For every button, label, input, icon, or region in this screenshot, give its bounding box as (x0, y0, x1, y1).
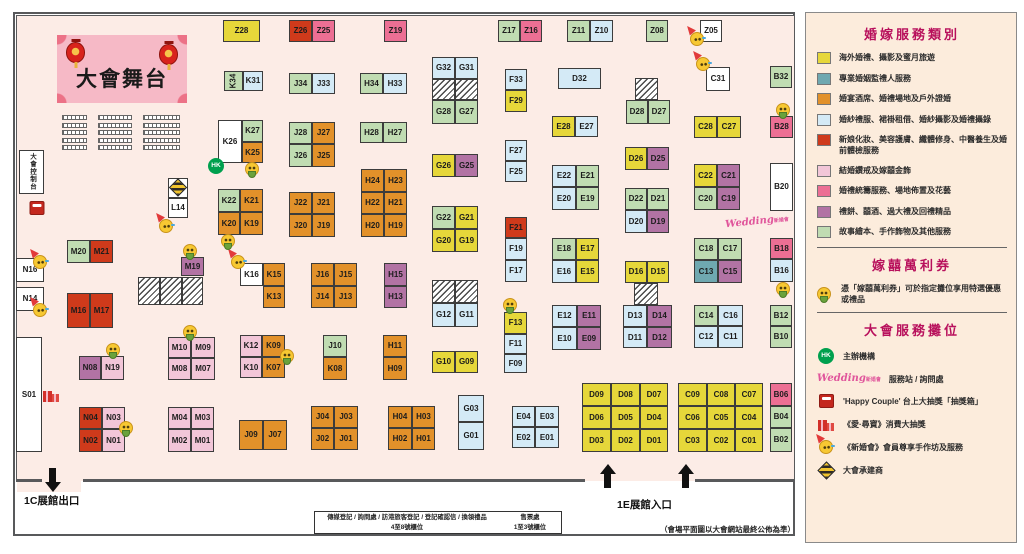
party-icon (819, 440, 833, 454)
booth-G03: G03 (458, 395, 484, 422)
booth-J01: J01 (334, 428, 358, 450)
registration-counter: 傳媒登記 / 詢問處 / 訪港旅客登記 / 登記確認信 / 換領禮品 4至8號櫃… (314, 511, 562, 534)
booth-C28: C28 (694, 116, 717, 138)
booth-E11: E11 (577, 305, 601, 327)
booth-J34: J34 (289, 73, 312, 94)
hatched-area (634, 283, 658, 305)
booth-B32: B32 (770, 66, 792, 88)
booth-M20: M20 (67, 240, 90, 263)
booth-C13: C13 (694, 260, 718, 283)
booth-H20: H20 (361, 214, 384, 237)
booth-Z11: Z11 (567, 20, 590, 42)
category-swatch (817, 165, 831, 177)
lantern-icon (66, 42, 85, 63)
booth-D13: D13 (623, 305, 647, 327)
redbox-icon (30, 199, 45, 217)
booth-C22: C22 (694, 164, 717, 187)
booth-E28: E28 (552, 116, 575, 137)
booth-B16: B16 (770, 259, 793, 282)
booth-M04: M04 (168, 407, 191, 429)
booth-G32: G32 (432, 57, 455, 79)
booth-N08: N08 (79, 356, 101, 380)
booth-E19: E19 (576, 187, 599, 210)
booth-D21: D21 (647, 188, 669, 210)
category-item: 新娘化妝、美容護膚、纖體修身、中醫養生及婚前體檢服務 (817, 134, 1007, 156)
booth-E12: E12 (552, 305, 577, 327)
booth-D27: D27 (648, 100, 670, 124)
booth-D11: D11 (623, 327, 647, 348)
hk-icon: HK (208, 157, 224, 175)
booth-F21: F21 (505, 217, 527, 238)
booth-G12: G12 (432, 303, 455, 327)
booth-E21: E21 (576, 165, 599, 187)
booth-E09: E09 (577, 327, 601, 350)
main-stage: 大會舞台 (57, 35, 187, 103)
booth-C08: C08 (707, 383, 735, 406)
hk-icon: HK (818, 348, 834, 364)
wedding-icon: Wedding新婚會 (817, 374, 881, 384)
party-icon (231, 253, 245, 271)
category-swatch (817, 185, 831, 197)
bottom-wall-segment (695, 479, 795, 482)
booth-Z10: Z10 (590, 20, 613, 42)
booth-D06: D06 (582, 406, 611, 429)
booth-H33: H33 (383, 73, 407, 94)
booth-M01: M01 (191, 429, 214, 452)
booth-F27: F27 (505, 140, 527, 161)
hatched-area (635, 78, 658, 100)
booth-M17: M17 (90, 293, 113, 328)
diamond-icon (169, 179, 187, 197)
service-icon-holder (817, 464, 835, 477)
booth-C21: C21 (717, 164, 740, 187)
seat-row (98, 130, 132, 135)
redbox-icon (819, 394, 834, 408)
floorplan-canvas: 大會舞台 大會控制台 Z28Z26Z25Z19Z17Z16Z11Z10Z08Z0… (0, 0, 1024, 554)
smiley-icon (503, 298, 517, 312)
booth-H03: H03 (412, 406, 435, 428)
booth-D08: D08 (611, 383, 640, 406)
booth-M21: M21 (90, 240, 113, 263)
category-item: 禮餅、囍酒、過大禮及回禮精品 (817, 206, 1007, 218)
booth-D09: D09 (582, 383, 611, 406)
booth-C11: C11 (718, 326, 743, 348)
category-swatch (817, 114, 831, 126)
booth-K13: K13 (263, 286, 285, 308)
booth-E10: E10 (552, 327, 577, 350)
booth-H04: H04 (388, 406, 412, 428)
booth-J22: J22 (289, 192, 312, 214)
service-label: 'Happy Couple' 台上大抽獎「抽獎箱」 (843, 396, 983, 407)
seat-row (62, 138, 87, 143)
smiley-icon (119, 419, 133, 437)
voucher-text: 憑「嫁囍萬利券」可於指定攤位享用特選優惠或禮品 (841, 283, 1007, 305)
booth-H23: H23 (384, 169, 407, 192)
party-icon (696, 57, 710, 71)
booth-F19: F19 (505, 238, 527, 260)
smiley-icon (183, 244, 197, 258)
seat-row (62, 123, 87, 128)
booth-G25: G25 (455, 154, 478, 177)
booth-K15: K15 (263, 263, 285, 286)
seat-row (98, 115, 132, 120)
booth-J14: J14 (311, 286, 334, 308)
hatched-area (160, 277, 182, 305)
booth-D07: D07 (640, 383, 668, 406)
booth-D15: D15 (647, 261, 669, 283)
smiley-icon (503, 296, 517, 314)
booth-C16: C16 (718, 305, 743, 326)
booth-B18: B18 (770, 238, 793, 259)
booth-F33: F33 (505, 69, 527, 90)
booth-J26: J26 (289, 144, 312, 167)
booth-J07: J07 (263, 420, 287, 450)
seat-row (62, 115, 87, 120)
booth-C14: C14 (694, 305, 718, 326)
booth-J10: J10 (323, 335, 347, 357)
lantern-icon (159, 44, 178, 65)
divider (817, 247, 1007, 248)
booth-J16: J16 (311, 263, 334, 286)
booth-E02: E02 (512, 427, 535, 448)
exit-arrow (44, 468, 61, 492)
booth-G11: G11 (455, 303, 478, 327)
booth-E17: E17 (576, 238, 599, 260)
seat-row (98, 123, 132, 128)
booth-D03: D03 (582, 429, 611, 452)
legend-title-services: 大會服務攤位 (817, 320, 1007, 339)
booth-Z16: Z16 (520, 20, 542, 42)
booth-B20: B20 (770, 163, 793, 211)
category-label: 婚禮統籌服務、場地佈置及花藝 (839, 185, 951, 196)
booth-J20: J20 (289, 214, 312, 237)
booth-C18: C18 (694, 238, 718, 260)
booth-C17: C17 (718, 238, 742, 260)
booth-N04: N04 (79, 407, 102, 429)
booth-H28: H28 (360, 122, 383, 143)
disclaimer-note: （會場平面圖以大會網站最終公佈為準） (555, 524, 795, 535)
smiley-icon (106, 343, 120, 357)
booth-E18: E18 (552, 238, 576, 260)
booth-M08: M08 (168, 358, 191, 380)
party-icon (33, 301, 47, 319)
booth-H24: H24 (361, 169, 384, 192)
party-icon (696, 55, 710, 73)
ticket-counter-text: 售票處 1至3號櫃位 (499, 512, 561, 533)
gifts-icon (43, 389, 59, 402)
hatched-area (138, 277, 160, 305)
booth-H21: H21 (384, 192, 407, 214)
booth-Z19: Z19 (384, 20, 407, 42)
booth-D04: D04 (640, 406, 668, 429)
party-icon (159, 219, 173, 233)
booth-C12: C12 (694, 326, 718, 348)
booth-J03: J03 (334, 406, 358, 428)
booth-K08: K08 (323, 357, 347, 380)
booth-F25: F25 (505, 161, 527, 182)
booth-H11: H11 (383, 335, 407, 357)
booth-M02: M02 (168, 429, 191, 452)
hatched-area (455, 280, 478, 303)
booth-C20: C20 (694, 187, 717, 210)
booth-Z17: Z17 (498, 20, 520, 42)
booth-H09: H09 (383, 357, 407, 380)
booth-G22: G22 (432, 206, 455, 229)
service-item: 'Happy Couple' 台上大抽獎「抽獎箱」 (817, 394, 1007, 408)
exit-label: 1C展館出口 (24, 493, 79, 508)
category-swatch (817, 206, 831, 218)
booth-G10: G10 (432, 351, 455, 373)
smiley-icon (221, 234, 235, 248)
booth-D32: D32 (558, 68, 601, 89)
booth-B10: B10 (770, 326, 792, 348)
smiley-icon (245, 162, 259, 176)
redbox-icon (30, 201, 45, 215)
smiley-icon (280, 349, 294, 363)
booth-F09: F09 (504, 354, 527, 373)
booth-G20: G20 (432, 229, 455, 252)
service-label: 《愛·尋寶》消費大抽獎 (843, 419, 926, 430)
booth-K27: K27 (242, 120, 263, 142)
entrance-arrow (599, 464, 616, 488)
smiley-icon (776, 282, 790, 296)
gifts-icon (818, 418, 834, 431)
booth-C09: C09 (678, 383, 707, 406)
booth-E27: E27 (575, 116, 598, 137)
category-swatch (817, 52, 831, 64)
category-label: 禮餅、囍酒、過大禮及回禮精品 (839, 206, 951, 217)
booth-S01: S01 (16, 337, 42, 452)
control-console-label: 大會控制台 (27, 153, 37, 191)
smiley-icon (280, 347, 294, 365)
booth-K10: K10 (240, 357, 262, 378)
category-item: 海外婚禮、攝影及蜜月旅遊 (817, 52, 1007, 64)
booth-J33: J33 (312, 73, 335, 94)
booth-J25: J25 (312, 144, 335, 167)
party-icon (690, 30, 704, 48)
control-console: 大會控制台 (19, 150, 44, 194)
booth-J02: J02 (311, 428, 334, 450)
money-smiley-icon (817, 283, 833, 303)
booth-H02: H02 (388, 428, 412, 450)
legend-title-categories: 婚嫁服務類別 (817, 24, 1007, 43)
seat-row (143, 138, 180, 143)
booth-G21: G21 (455, 206, 478, 229)
booth-D05: D05 (611, 406, 640, 429)
booth-K31: K31 (243, 71, 263, 91)
wedding-icon: Wedding新婚會 (725, 217, 789, 227)
booth-K34: K34 (224, 71, 243, 91)
booth-F11: F11 (504, 334, 527, 354)
seat-row (62, 130, 87, 135)
voucher-row: 憑「嫁囍萬利券」可於指定攤位享用特選優惠或禮品 (817, 283, 1007, 305)
booth-D19: D19 (647, 210, 669, 233)
seat-row (98, 145, 132, 150)
booth-G19: G19 (455, 229, 478, 252)
booth-M16: M16 (67, 293, 90, 328)
gifts-icon (43, 387, 59, 405)
smiley-icon (776, 103, 790, 117)
booth-G28: G28 (432, 100, 455, 124)
category-item: 婚紗禮服、裙褂租借、婚紗攝影及婚禮攝錄 (817, 114, 1007, 126)
category-swatch (817, 226, 831, 238)
booth-E15: E15 (576, 260, 599, 283)
booth-D28: D28 (626, 100, 648, 124)
seat-row (143, 130, 180, 135)
hk-icon: HK (208, 158, 224, 174)
booth-C07: C07 (735, 383, 763, 406)
booth-C05: C05 (707, 406, 735, 429)
booth-H34: H34 (360, 73, 383, 94)
service-label: 主辦機構 (843, 351, 875, 362)
booth-D02: D02 (611, 429, 640, 452)
booth-D14: D14 (647, 305, 672, 327)
bottom-wall-segment (83, 479, 585, 482)
booth-G31: G31 (455, 57, 478, 79)
hatched-area (432, 79, 455, 100)
booth-E16: E16 (552, 260, 576, 283)
booth-J04: J04 (311, 406, 334, 428)
booth-G26: G26 (432, 154, 455, 177)
booth-B04: B04 (770, 406, 792, 428)
category-label: 婚宴酒席、婚禮場地及戶外證婚 (839, 93, 951, 104)
service-item: HK主辦機構 (817, 348, 1007, 364)
category-label: 婚紗禮服、裙褂租借、婚紗攝影及婚禮攝錄 (839, 114, 991, 125)
booth-G09: G09 (455, 351, 478, 373)
party-icon (33, 255, 47, 269)
booth-J09: J09 (239, 420, 263, 450)
category-item: 婚宴酒席、婚禮場地及戶外證婚 (817, 93, 1007, 105)
service-icon-holder (817, 418, 835, 431)
booth-B28: B28 (770, 116, 793, 138)
category-swatch (817, 73, 831, 85)
category-item: 故事繪本、手作飾物及其他服務 (817, 226, 1007, 238)
stage-label: 大會舞台 (76, 63, 168, 103)
smiley-icon (183, 325, 197, 339)
smiley-icon (119, 421, 133, 435)
booth-D01: D01 (640, 429, 668, 452)
category-swatch (817, 134, 831, 146)
booth-H22: H22 (361, 192, 384, 214)
service-icon-holder (817, 394, 835, 408)
booth-C19: C19 (717, 187, 740, 210)
category-label: 新娘化妝、美容護膚、纖體修身、中醫養生及婚前體檢服務 (839, 134, 1007, 156)
category-label: 故事繪本、手作飾物及其他服務 (839, 226, 951, 237)
registration-counter-text: 傳媒登記 / 詢問處 / 訪港旅客登記 / 登記確認信 / 換領禮品 4至8號櫃… (315, 512, 499, 533)
booth-Z26: Z26 (289, 20, 312, 42)
booth-E01: E01 (535, 427, 559, 448)
booth-H19: H19 (384, 214, 407, 237)
booth-C03: C03 (678, 429, 707, 452)
booth-M03: M03 (191, 407, 214, 429)
service-item: Wedding新婚會服務站 / 詢問處 (817, 374, 1007, 385)
booth-K19: K19 (240, 212, 263, 235)
service-item: 大會承建商 (817, 464, 1007, 477)
category-item: 專業婚姻監禮人服務 (817, 73, 1007, 85)
booth-C27: C27 (717, 116, 741, 138)
booth-G27: G27 (455, 100, 478, 124)
booth-D26: D26 (625, 147, 647, 170)
booth-J27: J27 (312, 122, 335, 144)
booth-D22: D22 (625, 188, 647, 210)
category-item: 婚禮統籌服務、場地佈置及花藝 (817, 185, 1007, 197)
smiley-icon (776, 101, 790, 119)
booth-G01: G01 (458, 422, 484, 450)
booth-E03: E03 (535, 406, 559, 427)
booth-E04: E04 (512, 406, 535, 427)
legend-sidebar: 婚嫁服務類別 海外婚禮、攝影及蜜月旅遊專業婚姻監禮人服務婚宴酒席、婚禮場地及戶外… (805, 12, 1017, 543)
category-label: 結婚鑽戒及嫁囍金飾 (839, 165, 911, 176)
service-label: 服務站 / 詢問處 (889, 374, 944, 385)
booth-J28: J28 (289, 122, 312, 144)
smiley-icon (776, 280, 790, 298)
booth-D20: D20 (625, 210, 647, 233)
booth-J15: J15 (334, 263, 357, 286)
booth-D12: D12 (647, 327, 672, 348)
booth-C06: C06 (678, 406, 707, 429)
seat-row (143, 145, 180, 150)
hatched-area (432, 280, 455, 303)
seat-row (143, 123, 180, 128)
smiley-icon (106, 341, 120, 359)
booth-M07: M07 (191, 358, 215, 380)
party-icon (231, 255, 245, 269)
booth-C15: C15 (718, 260, 742, 283)
booth-C04: C04 (735, 406, 763, 429)
hatched-area (182, 277, 203, 305)
service-item: 《新婚會》會員尊享手作坊及服務 (817, 440, 1007, 454)
booth-E20: E20 (552, 187, 576, 210)
booth-F29: F29 (505, 90, 527, 112)
service-item: 《愛·尋寶》消費大抽獎 (817, 418, 1007, 431)
booth-J21: J21 (312, 192, 335, 214)
party-icon (159, 217, 173, 235)
category-label: 專業婚姻監禮人服務 (839, 73, 911, 84)
booth-Z08: Z08 (646, 20, 668, 42)
category-item: 結婚鑽戒及嫁囍金飾 (817, 165, 1007, 177)
entrance-label: 1E展館入口 (617, 497, 672, 512)
service-icon-holder: Wedding新婚會 (817, 374, 881, 384)
divider (817, 312, 1007, 313)
smiley-icon (221, 232, 235, 250)
seat-row (62, 145, 87, 150)
service-label: 《新婚會》會員尊享手作坊及服務 (843, 442, 963, 453)
category-swatch (817, 93, 831, 105)
service-legend-list: HK主辦機構Wedding新婚會服務站 / 詢問處'Happy Couple' … (817, 348, 1007, 477)
party-icon (33, 253, 47, 271)
party-icon (690, 32, 704, 46)
booth-Z28: Z28 (223, 20, 260, 42)
booth-H01: H01 (412, 428, 435, 450)
booth-B12: B12 (770, 305, 792, 326)
service-icon-holder: HK (817, 348, 835, 364)
hatched-area (455, 79, 478, 100)
booth-H13: H13 (384, 286, 407, 308)
booth-E22: E22 (552, 165, 576, 187)
booth-H15: H15 (384, 263, 407, 286)
seat-row (143, 115, 180, 120)
booth-H27: H27 (383, 122, 407, 143)
party-icon (33, 303, 47, 317)
booth-L14: L14 (168, 198, 188, 218)
diamond-icon (172, 179, 185, 197)
booth-B06: B06 (770, 383, 792, 406)
booth-K21: K21 (240, 189, 263, 212)
booth-F13: F13 (504, 312, 527, 334)
booth-B02: B02 (770, 428, 792, 452)
booth-C01: C01 (735, 429, 763, 452)
booth-N19: N19 (101, 356, 124, 380)
